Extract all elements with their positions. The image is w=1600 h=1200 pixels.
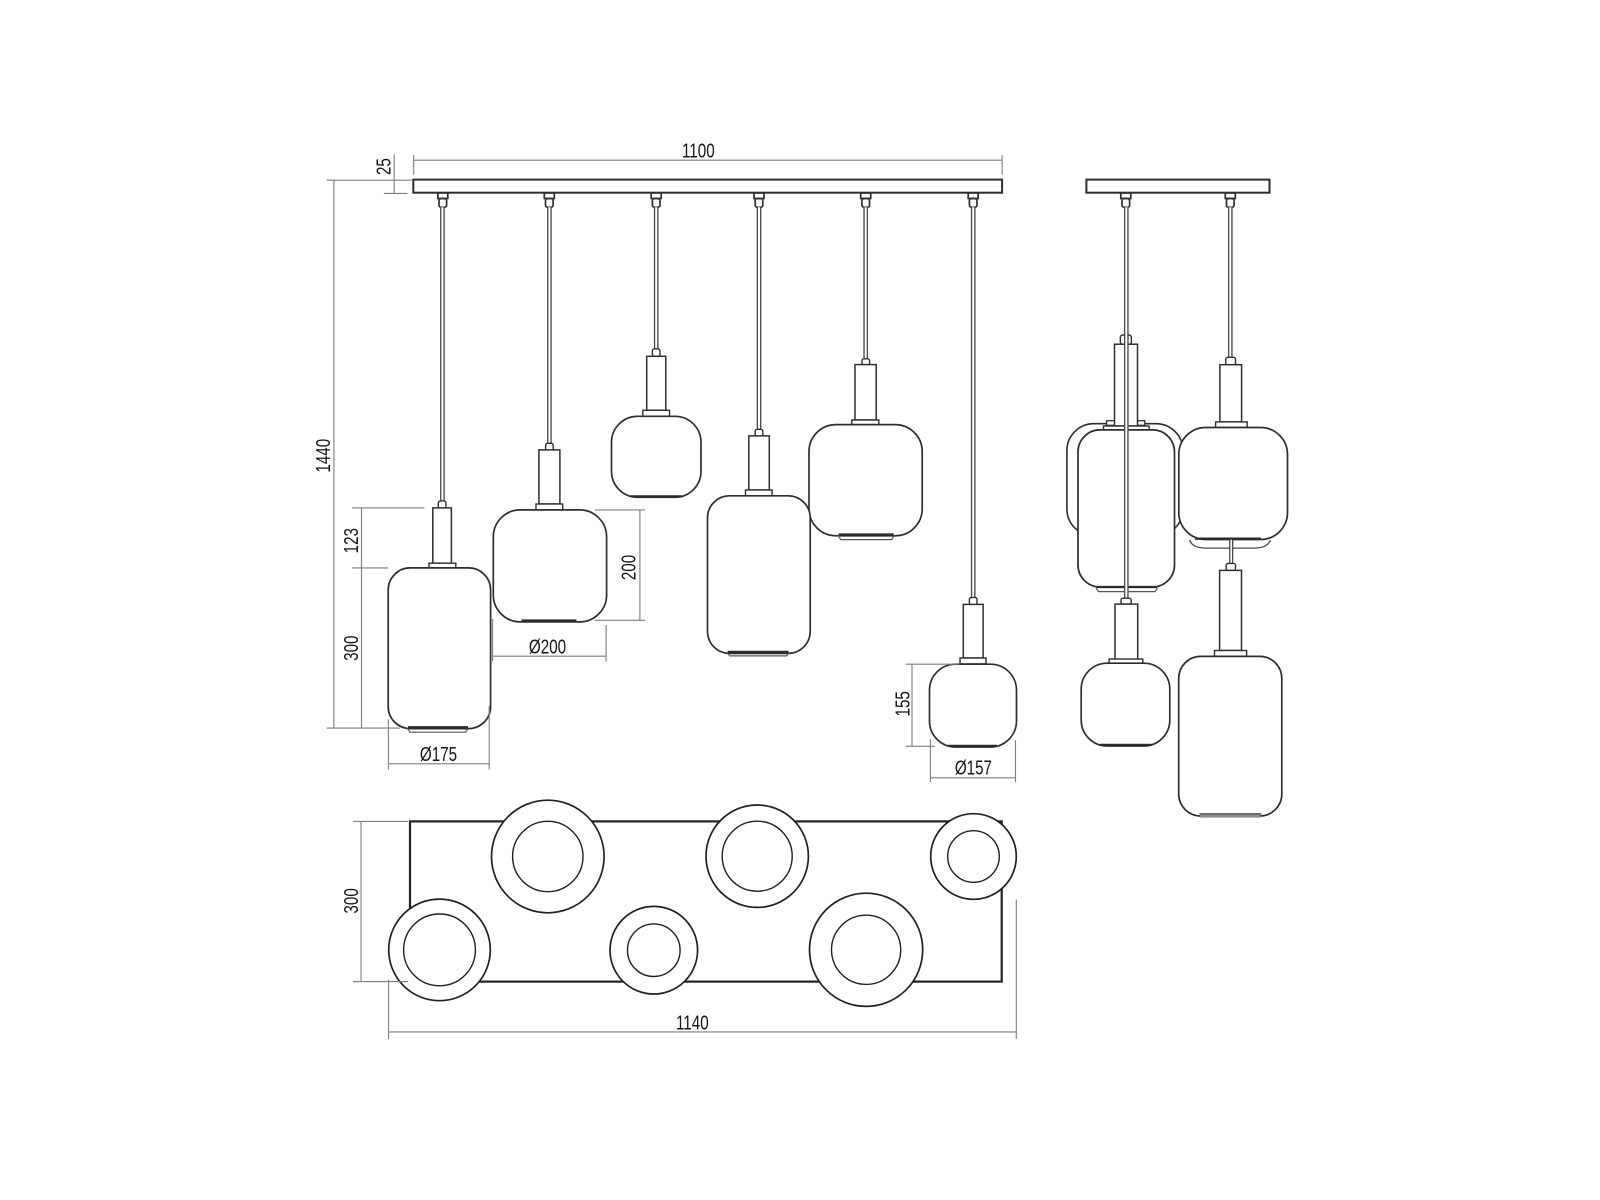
svg-text:25: 25 <box>372 158 395 175</box>
svg-text:1440: 1440 <box>312 439 335 473</box>
svg-text:Ø157: Ø157 <box>955 756 992 779</box>
svg-text:300: 300 <box>340 635 363 660</box>
svg-text:1140: 1140 <box>676 1011 709 1034</box>
svg-text:1100: 1100 <box>682 140 715 163</box>
svg-text:300: 300 <box>340 888 363 913</box>
svg-text:Ø200: Ø200 <box>529 636 566 659</box>
svg-text:123: 123 <box>340 528 363 553</box>
svg-text:200: 200 <box>617 555 640 580</box>
svg-text:Ø175: Ø175 <box>420 743 457 766</box>
svg-text:155: 155 <box>891 691 914 716</box>
